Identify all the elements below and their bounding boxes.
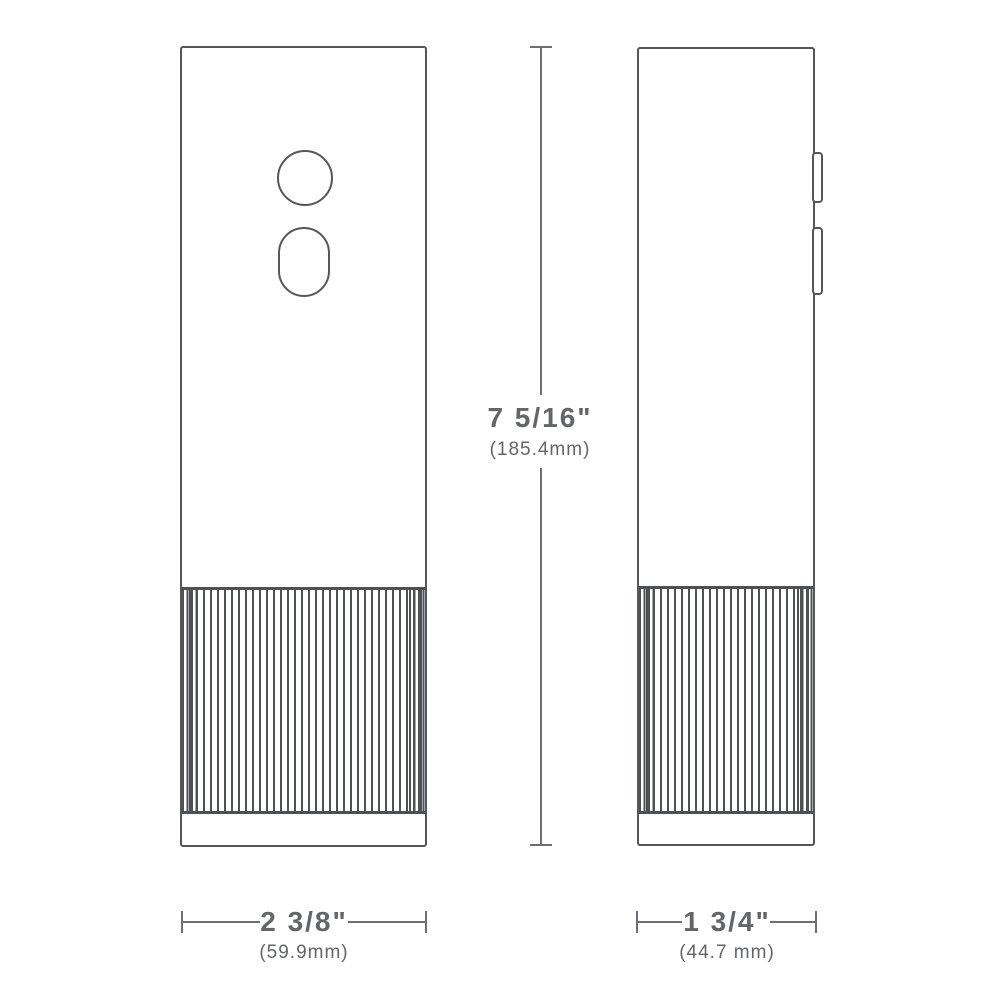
depth-dimension-value: 1 3/4" xyxy=(617,907,837,937)
lower-side-button xyxy=(812,227,823,295)
power-button-circle xyxy=(277,150,333,206)
trigger-button-oval xyxy=(278,227,330,297)
height-dimension-line-lower xyxy=(540,468,542,846)
height-dimension-tick-top xyxy=(530,46,552,48)
height-dimension-tick-bottom xyxy=(530,844,552,846)
width-dimension-tick-right xyxy=(425,911,427,933)
width-dimension-metric: (59.9mm) xyxy=(194,943,414,963)
height-dimension-value: 7 5/16" xyxy=(430,403,650,433)
front-ribbed-grip xyxy=(182,587,425,814)
height-dimension-line-upper xyxy=(540,48,542,395)
upper-side-button xyxy=(812,152,823,203)
depth-dimension-metric: (44.7 mm) xyxy=(617,943,837,963)
width-dimension-tick-left xyxy=(181,911,183,933)
side-ribbed-grip xyxy=(639,586,813,814)
height-dimension-metric: (185.4mm) xyxy=(430,440,650,460)
product-dimension-diagram: 7 5/16" (185.4mm) 2 3/8" (59.9mm) 1 3/4"… xyxy=(0,0,1000,1000)
width-dimension-value: 2 3/8" xyxy=(194,907,414,937)
